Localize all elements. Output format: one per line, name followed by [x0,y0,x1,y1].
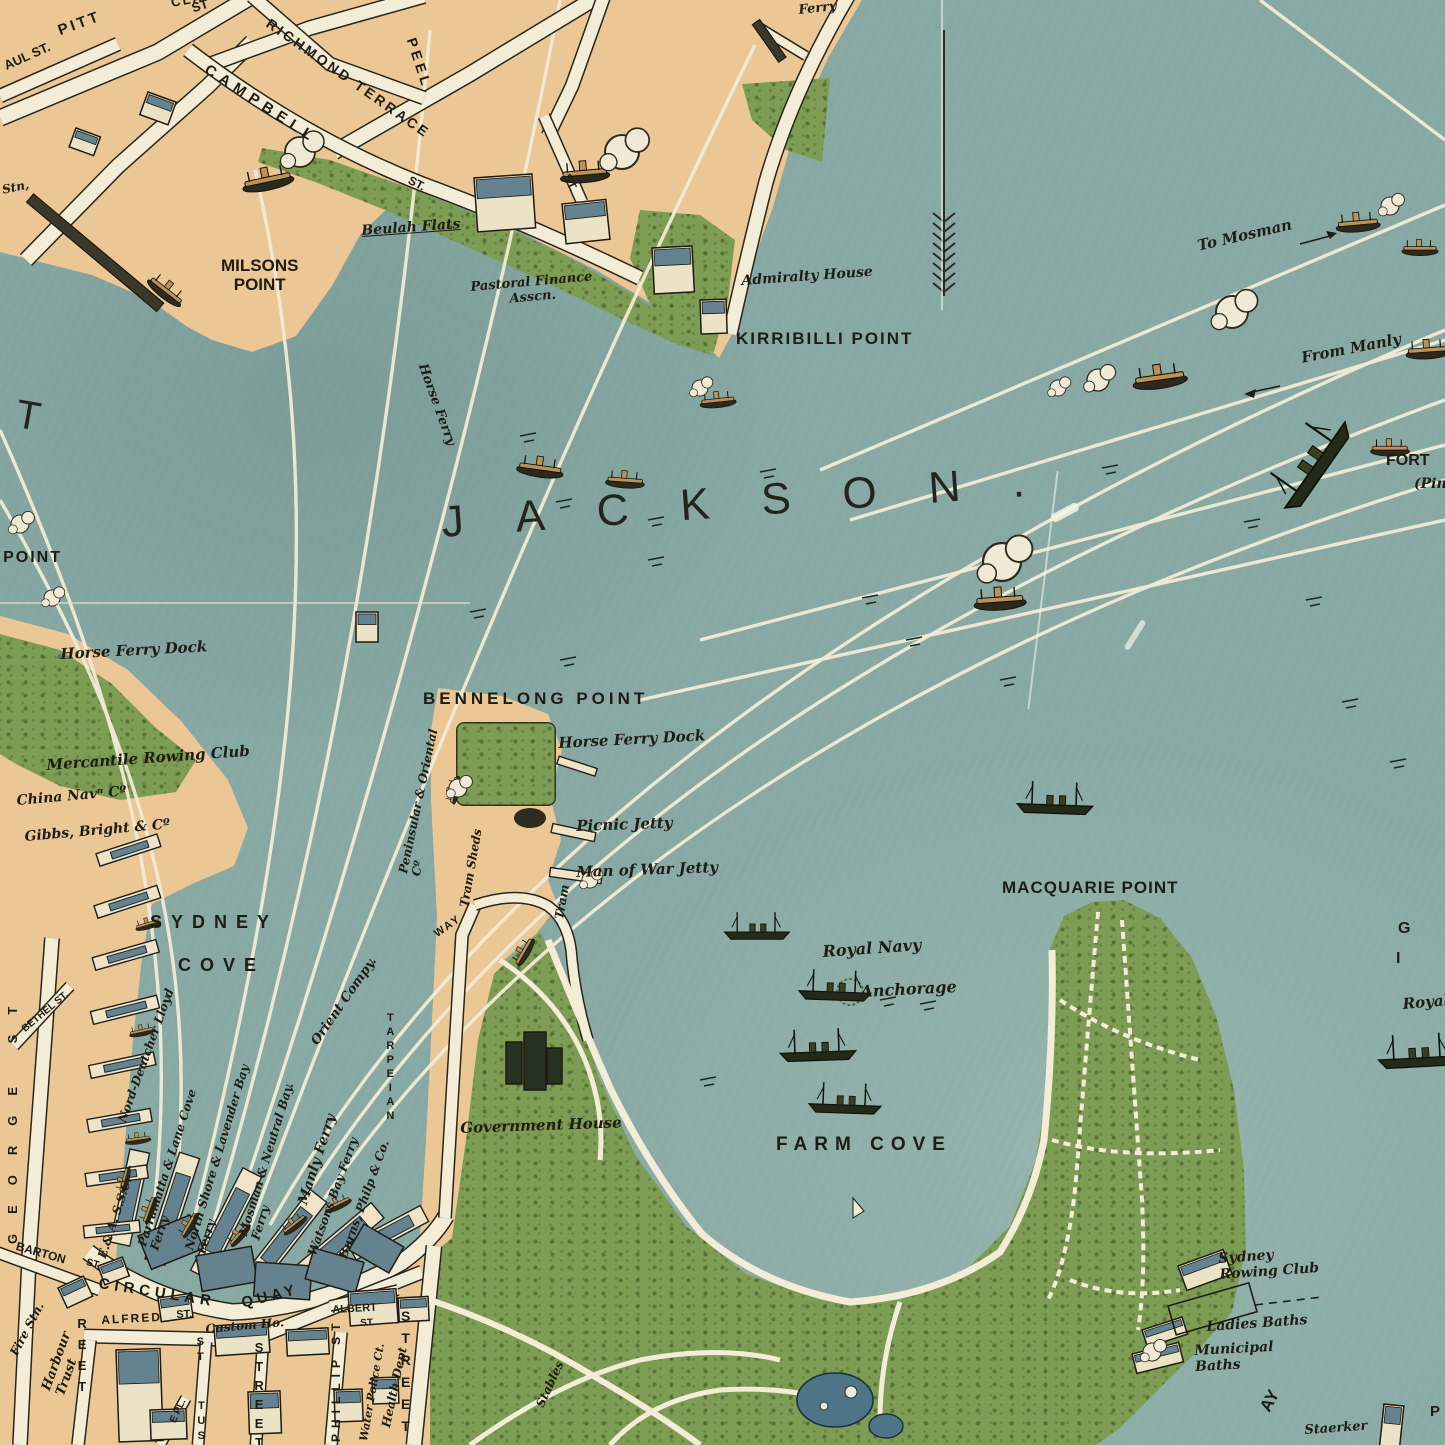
label-tus: TUS [195,1400,207,1445]
label-china-nav-c: China Navⁿ Cº [16,784,127,809]
label-quay: QUAY [240,1282,300,1312]
label-st: ST [194,1336,206,1366]
label-nord-deutcher-lloyd: Nord-Deutcher Lloyd [116,987,177,1125]
label-bennelong-point: BENNELONG POINT [423,689,648,708]
label-fire-stn: Fire Stn. [8,1300,47,1358]
label-circular: CIRCULAR [97,1276,216,1311]
label-stables: Stables [534,1359,567,1409]
label-s-point: S POINT [0,549,62,567]
label-st: ST. [560,172,580,193]
harbour-map: PITTSTAUL ST.CLAPHAM RISERICHMOND TERRAC… [0,0,1445,1445]
label-farm-cove: FARM COVE [776,1134,952,1155]
label-admiralty-house: Admiralty House [741,265,873,290]
label-royal: Royal [1402,992,1445,1013]
label-street: STREET [251,1340,266,1445]
label-from-manly: From Manly [1300,331,1402,367]
label-aul-st: AUL ST. [2,40,53,73]
label-way: WAY [432,913,464,940]
label-reet: REET [74,1316,89,1400]
label-e-a-s-s-c: E.& A. S.S.C. [96,1176,135,1260]
label-ferry: Ferry [798,0,837,18]
label-street: STREET [397,1308,413,1440]
label-to-mosman: To Mosman [1196,216,1294,254]
label-ay: AY [1256,1387,1283,1415]
label-milsons-point: MILSONS POINT [221,256,298,294]
label-bethel-st: BETHEL ST. [20,989,71,1034]
label-tram-sheds: Tram Sheds [458,828,485,908]
label-pitt: PITT [56,9,104,40]
label-gibbs-bright-c: Gibbs, Bright & Cº [24,817,171,845]
label-kirribilli-point: KIRRIBILLI POINT [736,329,913,348]
label-p: P [1430,1404,1440,1421]
label-barton: BARTON [14,1240,67,1267]
label-staerker: Staerker [1304,1420,1368,1439]
label-mercantile-rowing-club: Mercantile Rowing Club [46,743,250,774]
label-picnic-jetty: Picnic Jetty [576,815,673,835]
label-sydney-rowing-club: Sydney Rowing Club [1218,1245,1320,1283]
label-stn: Stn, [1,178,30,197]
label-horse-ferry-dock: Horse Ferry Dock [558,727,706,751]
label-pastoral-finance-asscn: Pastoral Finance Asscn. [470,270,594,310]
label-government-house: Government House [460,1114,622,1136]
label-municipal-baths: Municipal Baths [1194,1340,1275,1375]
label-fort: FORT [1386,452,1430,470]
label-campbell: CAMPBELL [201,62,320,148]
label-peninsular-oriental-c: Peninsular & Oriental Cº [397,728,454,878]
label-george-st: GEORGE ST [6,987,21,1244]
label-anchorage: Anchorage [860,978,957,1001]
label-orient-compy: Orient Compy. [309,955,380,1048]
label-man-of-war-jetty: Man of War Jetty [576,859,718,881]
label-macquarie-point: MACQUARIE POINT [1002,878,1179,897]
label-tram: Tram [553,884,572,921]
label-i: I [1396,950,1400,968]
label-alfred: ALFRED [101,1311,162,1328]
label-beulah-flats: Beulah Flats [361,217,461,240]
map-labels: PITTSTAUL ST.CLAPHAM RISERICHMOND TERRAC… [0,0,1445,1445]
label-custom-ho: Custom Ho. [205,1316,285,1336]
label-peel: PEEL [403,36,434,91]
label-phillip-st: PHILLIP ST [330,1318,343,1442]
label-pin: (Pin [1414,477,1445,493]
label-horse-ferry-dock: Horse Ferry Dock [60,638,208,662]
label-st: ST [85,1257,100,1271]
label-cove: COVE [178,955,265,975]
label-water-police-ct: Water Police Ct. [358,1342,387,1442]
label-t: T [12,392,44,440]
label-albert: ALBERT [332,1302,377,1317]
label-g: G [1398,920,1410,938]
label-tarpeian: TARPEIAN [384,1012,396,1124]
label-st: ST. [406,174,428,194]
label-horse-ferry: Horse Ferry [414,362,457,448]
label-sydney: SYDNEY [150,912,278,932]
label-st: ST. [360,1317,375,1329]
label-jackson: JACKSON. [440,454,1078,548]
label-clapham-rise: CLAPHAM RISE [170,0,294,10]
label-ladies-baths: Ladies Baths [1206,1313,1308,1336]
label-royal-navy: Royal Navy [822,936,922,961]
label-st: ST. [176,1308,193,1321]
label-e-pl: E PL. [168,1397,189,1424]
